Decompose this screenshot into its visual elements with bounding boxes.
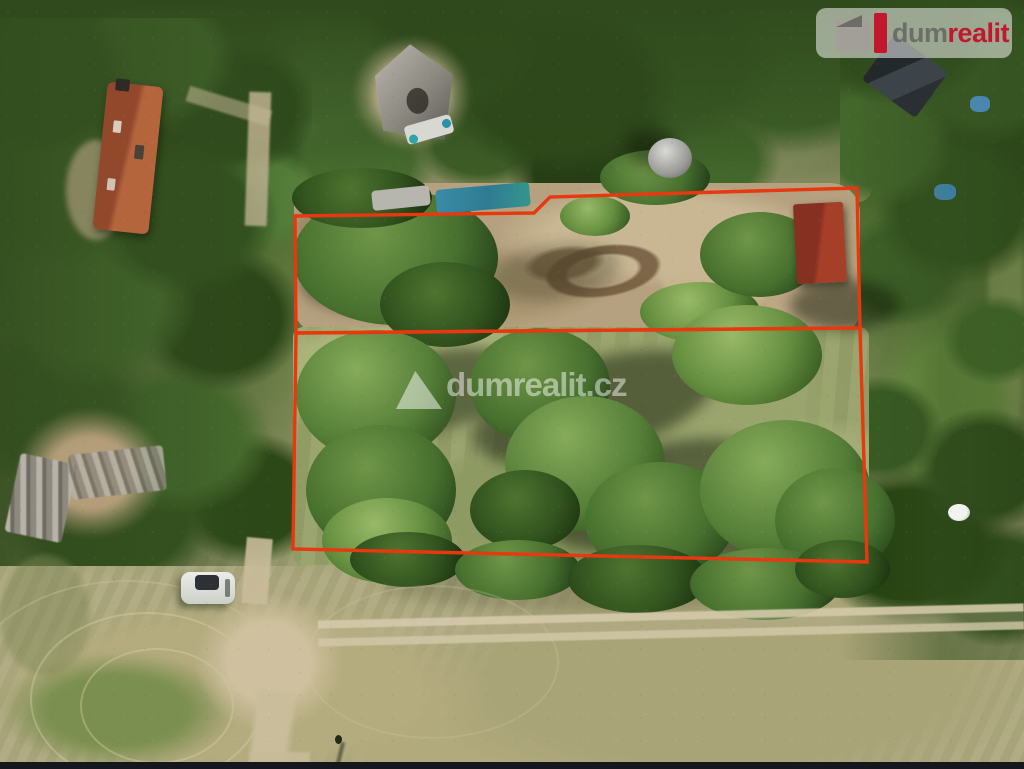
logo-red-bar <box>874 13 887 53</box>
photo-bottom-edge <box>0 762 1024 769</box>
logo-word-realit: realit <box>948 18 1010 49</box>
watermark-text: dumrealit.cz <box>446 366 627 404</box>
lower-plot-boundary <box>293 328 867 562</box>
logo-word-dum: dum <box>892 18 948 49</box>
aerial-photo: dumrealit.cz dumrealit <box>0 0 1024 769</box>
upper-plot-boundary <box>295 188 860 333</box>
dumrealit-logo-icon <box>836 11 892 55</box>
dumrealit-logo-plate: dumrealit <box>816 8 1012 58</box>
